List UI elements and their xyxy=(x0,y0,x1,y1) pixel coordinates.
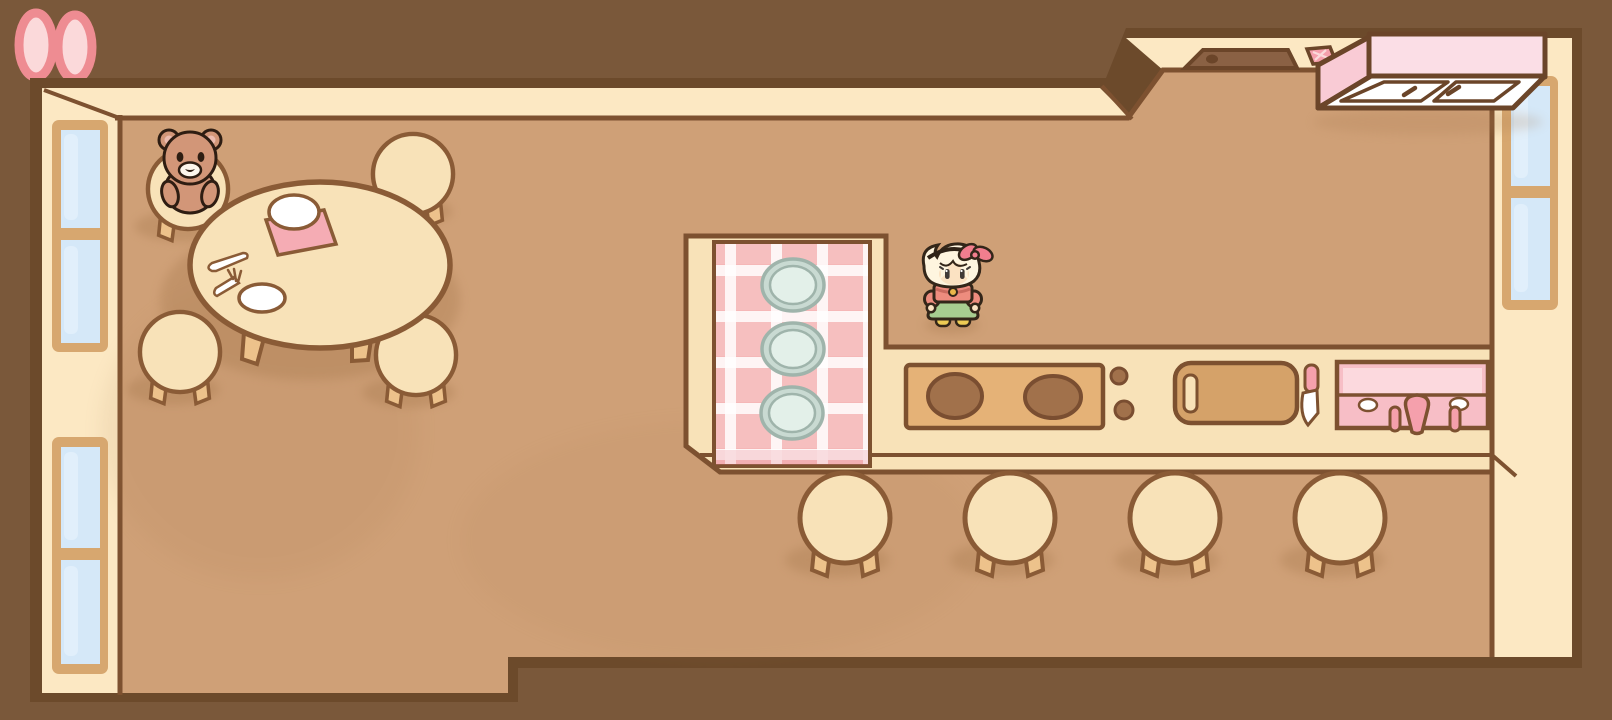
window-left-bottom xyxy=(52,437,108,674)
button xyxy=(949,288,957,296)
stove-knob[interactable] xyxy=(1115,401,1133,419)
cutting-board[interactable] xyxy=(1175,363,1297,423)
sink-handle[interactable] xyxy=(1390,407,1400,431)
stove-knob[interactable] xyxy=(1111,368,1127,384)
knife-on-counter[interactable] xyxy=(1302,365,1318,425)
cabinet-shadow xyxy=(1313,109,1543,135)
hand xyxy=(927,304,935,312)
top-wall xyxy=(42,88,1130,118)
pink-oval-icon xyxy=(58,15,92,79)
table-plate-bottom[interactable] xyxy=(239,284,285,312)
table-plate-top[interactable] xyxy=(269,195,319,229)
hanging-cabinet[interactable] xyxy=(1313,34,1545,135)
pink-oval-icon xyxy=(19,13,53,77)
counter-plate-2[interactable] xyxy=(762,323,824,375)
counter-plate-3[interactable] xyxy=(761,387,823,439)
counter-plate-1[interactable] xyxy=(762,259,824,311)
game-viewport xyxy=(0,0,1612,720)
wall-counter xyxy=(1185,47,1336,68)
window-right xyxy=(1502,76,1558,310)
sink[interactable] xyxy=(1337,362,1488,434)
hand xyxy=(971,304,979,312)
window-left-top xyxy=(52,120,108,352)
teddy-bear[interactable] xyxy=(159,130,221,213)
cabinet-top xyxy=(1369,34,1545,77)
burner-right xyxy=(1025,376,1081,418)
cafe-room-scene xyxy=(0,0,1612,720)
stove[interactable] xyxy=(906,365,1103,428)
burner-left xyxy=(928,374,982,418)
wall-sink-basin[interactable] xyxy=(1185,50,1297,68)
drain-icon xyxy=(1206,55,1218,64)
sink-handle[interactable] xyxy=(1450,407,1460,431)
soap-spot xyxy=(1359,399,1377,411)
sink-basin xyxy=(1343,368,1482,394)
board-handle-slot xyxy=(1184,375,1197,412)
